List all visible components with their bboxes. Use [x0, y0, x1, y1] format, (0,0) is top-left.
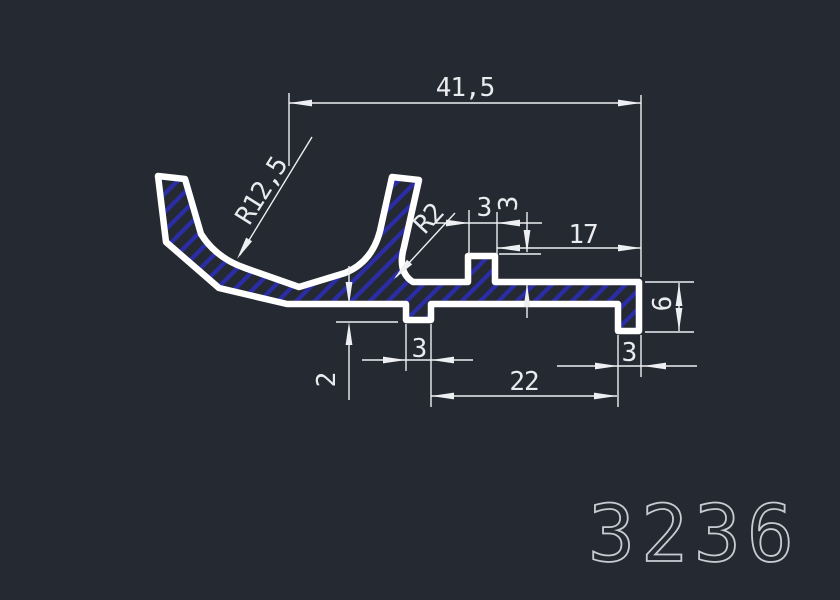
arrow-boss-height-top [524, 230, 531, 253]
profile-outline [158, 176, 639, 331]
dim-total-width: 41,5 [436, 73, 495, 103]
arrow-depth-bottom [346, 322, 353, 345]
dimensions-layer: 41,5 R12,5 R2 3 3 17 6 [230, 73, 697, 407]
arrow-foot-right-left [595, 363, 618, 370]
arrow-foot-right-right [643, 363, 666, 370]
arrow-boss-right [497, 220, 520, 227]
dim-foot-span: 22 [509, 367, 538, 397]
drawing-canvas: 41,5 R12,5 R2 3 3 17 6 [0, 0, 840, 600]
arrow-22-right [594, 393, 617, 400]
arrow-17-right [618, 245, 641, 252]
arrow-22-left [431, 393, 454, 400]
dim-boss-to-end: 17 [568, 220, 597, 250]
arrow-17-left [497, 245, 520, 252]
cad-drawing-page: 41,5 R12,5 R2 3 3 17 6 [0, 0, 840, 600]
arrow-radius-large [237, 238, 252, 259]
dim-end-height: 6 [648, 297, 678, 312]
dim-mid-foot-depth: 2 [312, 373, 342, 388]
dim-mid-foot-width: 3 [412, 334, 427, 364]
arrow-boss-left [446, 220, 469, 227]
dim-boss-height: 3 [494, 197, 524, 212]
dim-boss-width: 3 [477, 193, 492, 223]
dim-radius-large: R12,5 [230, 152, 294, 230]
part-number: 3236 [588, 490, 800, 580]
dim-end-foot-width: 3 [622, 338, 637, 368]
arrow-midfoot-left [383, 357, 406, 364]
arrow-total-left [289, 100, 312, 107]
arrow-total-right [618, 100, 641, 107]
arrow-midfoot-right [431, 357, 454, 364]
